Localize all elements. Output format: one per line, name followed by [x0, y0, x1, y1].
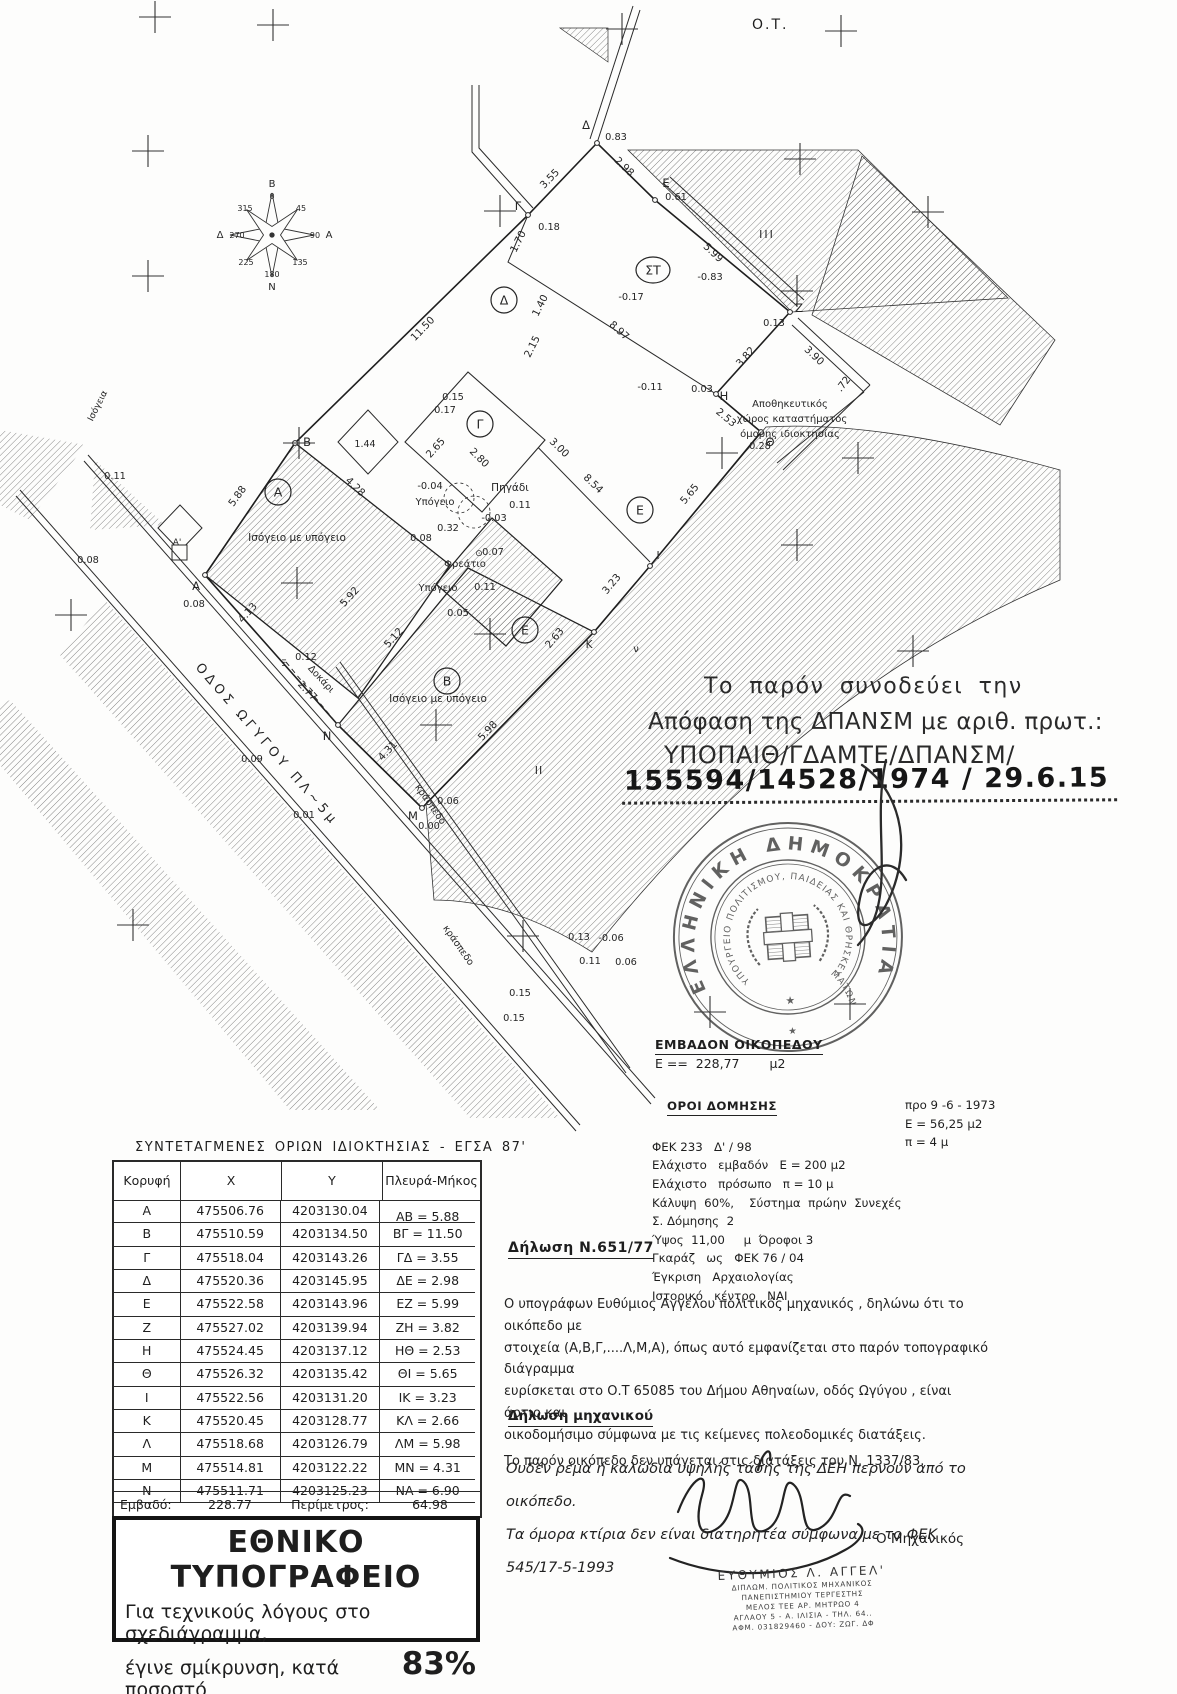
section-circle-label: Γ	[477, 417, 484, 432]
map-label: Πηγάδι	[491, 482, 529, 494]
map-label: -0.04	[417, 481, 442, 492]
section-circle-label: Β	[443, 674, 452, 689]
map-label: -0.17	[618, 292, 643, 303]
left-triangle-1	[0, 430, 85, 520]
cell-side-length: ΖΗ = 3.82	[380, 1317, 475, 1340]
cell-side-length: ΕΖ = 5.99	[380, 1293, 475, 1316]
coat-of-arms-icon	[746, 904, 830, 965]
cell-side-length: ΑΒ = 5.88	[380, 1200, 475, 1223]
map-label: Ξ	[281, 659, 287, 669]
map-label: 0.09	[241, 754, 263, 765]
table-row: Ε475522.584203143.96	[114, 1293, 380, 1316]
cell-vertex: Γ	[114, 1247, 181, 1269]
terms-prior-row: π = 4 μ	[905, 1133, 995, 1152]
map-label: Η	[720, 389, 729, 403]
map-label: 0	[269, 192, 274, 201]
cell-x: 475518.04	[181, 1247, 281, 1269]
map-label: χώρος καταστήματος	[737, 413, 847, 425]
approval-line-2: Απόφαση της ΔΠΑΝΣΜ με αριθ. πρωτ.:	[648, 709, 1103, 735]
map-label: 3.90	[802, 344, 826, 368]
printing-note-line-2: έγινε σμίκρυνση, κατά ποσοστό	[125, 1657, 394, 1694]
table-row: Β475510.594203134.50	[114, 1223, 380, 1246]
cell-x: 475520.45	[181, 1410, 281, 1432]
cell-y: 4203131.20	[281, 1387, 380, 1409]
map-label: 0.08	[183, 599, 205, 610]
area-label: Εμβαδό:	[114, 1497, 180, 1512]
table-row: Η475524.454203137.12	[114, 1340, 380, 1363]
map-label: 0.11	[474, 582, 496, 593]
map-label: 315	[237, 204, 252, 213]
map-label: ΙΙΙ	[759, 228, 775, 241]
map-label: 135	[292, 258, 307, 267]
map-label: Υπόγειο	[417, 582, 457, 594]
section-circle-label: Ε	[521, 623, 529, 638]
table-row: Ι475522.564203131.20	[114, 1387, 380, 1410]
terms-row: Ελάχιστο εμβαδόν Ε = 200 μ2	[652, 1156, 902, 1175]
map-label: 0.08	[77, 555, 99, 566]
cell-vertex: Ε	[114, 1293, 181, 1315]
map-label: -0.03	[481, 513, 506, 524]
map-label: 0.06	[437, 796, 459, 807]
table-row: Κ475520.454203128.77	[114, 1410, 380, 1433]
map-label: Δ	[217, 230, 224, 241]
map-label: 0.06	[615, 957, 637, 968]
map-label: Κ	[586, 639, 594, 651]
map-label: 45	[296, 204, 306, 213]
coords-table: Κορυφή X Y Πλευρά-Μήκος Α475506.76420313…	[112, 1160, 482, 1518]
map-label: Β	[269, 179, 276, 190]
map-label: Β	[303, 435, 311, 449]
cell-x: 475522.56	[181, 1387, 281, 1409]
map-label: 5.65	[679, 482, 702, 506]
map-label: 1.40	[531, 293, 551, 318]
map-label: 0.15	[442, 392, 464, 403]
plot-area-title: ΕΜΒΑΔΟΝ ΟΙΚΟΠΕΔΟΥ	[655, 1036, 823, 1055]
terms-row: Κάλυψη 60%, Σύστημα πρώην Συνεχές	[652, 1194, 902, 1213]
terms-row: Έγκριση Αρχαιολογίας	[652, 1268, 902, 1287]
map-label: 0.11	[579, 956, 601, 967]
map-label: Φρεάτιο	[444, 558, 486, 570]
declaration-line: Ο υπογράφων Ευθύμιος Αγγέλου πολιτικός μ…	[504, 1294, 990, 1338]
cell-side-length: ΚΛ = 2.66	[380, 1410, 475, 1433]
map-label: 2.15	[523, 334, 543, 359]
coords-table-title: ΣΥΝΤΕΤΑΓΜΕΝΕΣ ΟΡΙΩΝ ΙΔΙΟΚΤΗΣΙΑΣ - ΕΓΣΑ 8…	[135, 1140, 526, 1155]
table-row: Θ475526.324203135.42	[114, 1363, 380, 1386]
map-label: 5.99	[701, 241, 725, 265]
cell-side-length: ΓΔ = 3.55	[380, 1247, 475, 1270]
col-header-y: Y	[282, 1162, 383, 1200]
cell-vertex: Δ	[114, 1270, 181, 1292]
plot-area-unit: μ2	[770, 1056, 786, 1071]
map-label: Ισόγεια	[85, 389, 110, 423]
map-label: 1.44	[354, 439, 375, 450]
section-circle-label: ΣΤ	[645, 263, 661, 278]
map-label: 0.17	[434, 405, 456, 416]
cell-y: 4203135.42	[281, 1363, 380, 1385]
map-label: Α'	[173, 538, 182, 548]
cell-x: 475527.02	[181, 1317, 281, 1339]
map-label: 270	[229, 231, 244, 240]
map-label: 3.82	[734, 345, 757, 369]
map-label: 0.61	[665, 192, 687, 203]
cell-x: 475518.68	[181, 1433, 281, 1455]
cell-side-length: ΘΙ = 5.65	[380, 1363, 475, 1386]
map-label: Ισόγειο με υπόγειο	[389, 693, 487, 705]
map-label: 0.83	[605, 132, 627, 143]
coords-table-footer: Εμβαδό: 228.77 Περίμετρος: 64.98	[114, 1491, 480, 1517]
cell-x: 475526.32	[181, 1363, 281, 1385]
map-label: 0.07	[482, 547, 504, 558]
cell-y: 4203143.96	[281, 1293, 380, 1315]
table-row: Γ475518.044203143.26	[114, 1247, 380, 1270]
national-printing-office-box: ΕΘΝΙΚΟ ΤΥΠΟΓΡΑΦΕΙΟ Για τεχνικούς λόγους …	[112, 1516, 480, 1642]
col-header-side-length: Πλευρά-Μήκος	[383, 1162, 480, 1200]
map-label: 3.23	[601, 572, 624, 596]
section-circle-label: Ε	[636, 503, 644, 518]
building-terms-left: ΦΕΚ 233 Δ' / 98Ελάχιστο εμβαδόν Ε = 200 …	[652, 1138, 902, 1305]
table-row: Ζ475527.024203139.94	[114, 1317, 380, 1340]
cell-y: 4203139.94	[281, 1317, 380, 1339]
cell-x: 475514.81	[181, 1457, 281, 1479]
cell-y: 4203145.95	[281, 1270, 380, 1292]
cell-vertex: Β	[114, 1223, 181, 1245]
cell-x: 475510.59	[181, 1223, 281, 1245]
cell-y: 4203130.04	[281, 1200, 380, 1222]
map-label: Ι	[656, 550, 659, 562]
cell-y: 4203137.12	[281, 1340, 380, 1362]
cell-y: 4203134.50	[281, 1223, 380, 1245]
map-label: 90	[310, 231, 320, 240]
area-value: 228.77	[180, 1497, 280, 1512]
cell-y: 4203128.77	[281, 1410, 380, 1432]
map-label: 0.03	[691, 384, 713, 395]
terms-row: Ελάχιστο πρόσωπο π = 10 μ	[652, 1175, 902, 1194]
cell-y: 4203122.22	[281, 1457, 380, 1479]
map-label: ΙΙ	[535, 764, 544, 777]
map-label: 225	[238, 258, 253, 267]
cell-vertex: Λ	[114, 1433, 181, 1455]
ot-block-label: Ο.Τ.	[752, 17, 788, 33]
building-terms-title: ΟΡΟΙ ΔΟΜΗΣΗΣ	[667, 1097, 777, 1117]
map-label: -0.83	[697, 272, 722, 283]
map-label: Α	[326, 230, 333, 241]
cell-x: 475522.58	[181, 1293, 281, 1315]
terms-row: Ύψος 11,00 μ Όροφοι 3	[652, 1231, 902, 1250]
engineer-stamp-block: ΕΥΘΥΜΙΟΣ Λ. ΑΓΓΕΛ'ΔΙΠΛΩΜ. ΠΟΛΙΤΙΚΟΣ ΜΗΧΑ…	[689, 1564, 916, 1635]
terms-prior-row: Ε = 56,25 μ2	[905, 1115, 995, 1134]
terms-row: ΦΕΚ 233 Δ' / 98	[652, 1138, 902, 1157]
map-label: -0.06	[598, 933, 623, 944]
plot-area-block: ΕΜΒΑΔΟΝ ΟΙΚΟΠΕΔΟΥ Ε == 228,77 μ2	[655, 1036, 823, 1072]
table-row: Μ475514.814203122.22	[114, 1457, 380, 1480]
map-label: 0.12	[295, 652, 317, 663]
map-label: 0.11	[104, 471, 126, 482]
map-label: 3.55	[538, 167, 562, 191]
map-label: Ισόγειο με υπόγειο	[248, 532, 346, 544]
map-label: Ν	[323, 729, 332, 743]
survey-map-drawing: Β04590Α135180Ν225270Δ315ΑΒΓΔΕΖΗΘΙΚΜΝΞνΑ'…	[0, 0, 1177, 1140]
map-label: 5.88	[227, 484, 249, 509]
table-row: Α475506.764203130.04	[114, 1200, 380, 1223]
map-label: Ζ	[795, 301, 803, 315]
map-label: 0.01	[293, 810, 315, 821]
printing-note-line-1: Για τεχνικούς λόγους στο σχεδιάγραμμα,	[125, 1601, 476, 1645]
cell-vertex: Α	[114, 1200, 181, 1222]
map-label: 0.32	[437, 523, 459, 534]
declaration-651-title: Δήλωση Ν.651/77	[508, 1240, 654, 1259]
map-label: 0.15	[503, 1013, 525, 1024]
cell-side-length: ΙΚ = 3.23	[380, 1387, 475, 1410]
col-header-vertex: Κορυφή	[114, 1162, 181, 1200]
map-label: 0.13	[763, 318, 785, 329]
cell-y: 4203126.79	[281, 1433, 380, 1455]
reduction-percent: 83%	[402, 1646, 476, 1682]
hatch-triangle-top	[560, 28, 608, 62]
table-row: Λ475518.684203126.79	[114, 1433, 380, 1456]
table-row: Δ475520.364203145.95	[114, 1270, 380, 1293]
perimeter-label: Περίμετρος:	[280, 1497, 380, 1512]
coords-table-body: Α475506.764203130.04Β475510.594203134.50…	[114, 1200, 380, 1503]
cell-side-length: ΜΝ = 4.31	[380, 1457, 475, 1480]
map-label: 0.11	[509, 500, 531, 511]
cell-vertex: Ι	[114, 1387, 181, 1409]
cell-vertex: Κ	[114, 1410, 181, 1432]
map-label: 2.98	[612, 155, 636, 179]
cell-vertex: Μ	[114, 1457, 181, 1479]
map-label: Μ	[408, 809, 418, 823]
stamp-star-1: ★	[785, 994, 796, 1008]
map-label: 0.15	[509, 988, 531, 999]
map-label: Αποθηκευτικός	[752, 398, 828, 410]
scanned-topographic-survey-document: Β04590Α135180Ν225270Δ315ΑΒΓΔΕΖΗΘΙΚΜΝΞνΑ'…	[0, 0, 1177, 1694]
cell-vertex: Η	[114, 1340, 181, 1362]
cell-x: 475520.36	[181, 1270, 281, 1292]
coords-table-sides: ΑΒ = 5.88ΒΓ = 11.50ΓΔ = 3.55ΔΕ = 2.98ΕΖ …	[380, 1200, 475, 1503]
engineer-role-label: Ο Μηχανικός	[876, 1531, 964, 1547]
map-label: 1.70	[509, 229, 529, 254]
map-label: .72	[835, 375, 854, 395]
cell-side-length: ΒΓ = 11.50	[380, 1223, 475, 1246]
printing-office-title: ΕΘΝΙΚΟ ΤΥΠΟΓΡΑΦΕΙΟ	[116, 1525, 476, 1595]
map-label: 8.97	[607, 319, 631, 342]
cell-x: 475524.45	[181, 1340, 281, 1362]
coords-table-header: Κορυφή X Y Πλευρά-Μήκος	[114, 1162, 480, 1201]
cell-x: 475506.76	[181, 1200, 281, 1222]
map-label: 8.54	[581, 472, 605, 496]
map-label: Δ	[582, 118, 590, 132]
approval-line-1: Το παρόν συνοδεύει την	[704, 674, 1023, 699]
perimeter-value: 64.98	[380, 1497, 480, 1512]
map-label: 0.05	[447, 608, 469, 619]
map-label: 180	[264, 270, 279, 279]
engineer-declaration-title: Δήλωση μηχανικού	[508, 1408, 653, 1427]
cell-vertex: Θ	[114, 1363, 181, 1385]
map-label: 0.18	[538, 222, 560, 233]
cell-side-length: ΔΕ = 2.98	[380, 1270, 475, 1293]
map-label: κράσπεδο	[440, 923, 476, 967]
declaration-line: στοιχεία (Α,Β,Γ,....Λ,Μ,Α), όπως αυτό εμ…	[504, 1338, 990, 1382]
cell-side-length: ΛΜ = 5.98	[380, 1433, 475, 1456]
map-label: 3.00	[547, 436, 571, 460]
map-label: Υπόγειο	[414, 496, 454, 508]
map-label: 0.28	[749, 441, 771, 452]
map-label: Α	[192, 579, 200, 593]
col-header-x: X	[181, 1162, 282, 1200]
map-label: 11.50	[409, 315, 437, 344]
map-label: ν	[633, 644, 639, 655]
map-label: όμορης ιδιοκτησίας	[740, 428, 840, 440]
map-label: Ε	[662, 176, 669, 190]
terms-row: Γκαράζ ως ΦΕΚ 76 / 04	[652, 1249, 902, 1268]
map-label: -0.11	[637, 382, 662, 393]
map-label: 0.13	[568, 932, 590, 943]
map-label: ⊙	[475, 549, 483, 559]
map-label: Ν	[268, 282, 275, 293]
building-terms-right: προ 9 -6 - 1973Ε = 56,25 μ2π = 4 μ	[905, 1096, 995, 1152]
signature-over-stamp	[820, 740, 950, 960]
cell-vertex: Ζ	[114, 1317, 181, 1339]
plot-area-value: Ε == 228,77	[655, 1056, 740, 1071]
terms-prior-row: προ 9 -6 - 1973	[905, 1096, 995, 1115]
cell-side-length: ΗΘ = 2.53	[380, 1340, 475, 1363]
section-circle-label: Α	[274, 485, 283, 500]
terms-row: Σ. Δόμησης 2	[652, 1212, 902, 1231]
cell-y: 4203143.26	[281, 1247, 380, 1269]
map-label: Γ	[515, 199, 522, 213]
section-circle-label: Δ	[500, 293, 509, 308]
map-label: 0.08	[410, 533, 432, 544]
